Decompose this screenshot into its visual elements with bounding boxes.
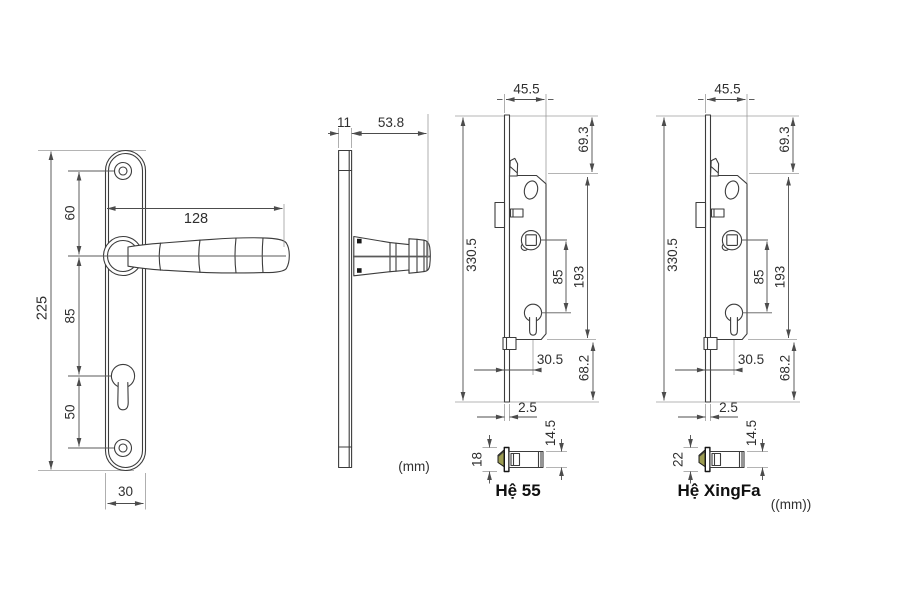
bottom-fixing-tab [704,338,717,350]
lock-diagram-1: 330.5 45.5 69.3 85 193 68.2 30.5 2.5 22 [656,82,800,501]
lock-faceplate [505,115,510,402]
mount-screw-dot [357,268,362,273]
case-slot [511,209,524,217]
dim-label-50: 50 [63,404,78,419]
front-view: 225 60 85 50 [35,151,290,510]
case-slot [712,209,725,217]
dim-label-case-width: 45.5 [513,82,539,97]
latch-body [509,452,543,468]
top-latch-tab [510,158,518,176]
dim-label-case-to-bottom: 68.2 [577,355,592,381]
unit-note: (mm) [398,459,429,474]
dim-label-projection: 53.8 [378,115,404,130]
dim-label-top-to-case: 69.3 [576,126,591,152]
lock-diagram-0: 330.5 45.5 69.3 85 193 68.2 30.5 2.5 18 [455,82,599,501]
dim-label-top-to-case: 69.3 [777,126,792,152]
dim-label-faceplate-height: 330.5 [665,238,680,272]
technical-drawing-page: 225 60 85 50 [0,0,900,600]
dim-label-case-to-bottom: 68.2 [778,355,793,381]
dim-label-spindle-to-cylinder: 85 [551,269,566,284]
backplate-outline [106,151,146,471]
side-view: 11 53.8 (mm) [328,114,430,474]
lock-faceplate [706,115,711,402]
dim-label-case-height: 193 [773,266,788,289]
latch-detail: 22 14.5 [671,420,769,484]
dim-label-latch-body-height: 14.5 [744,420,759,446]
dim-label-spindle-to-cylinder: 85 [752,269,767,284]
spindle-follower [521,231,540,251]
dim-label-backset: 30.5 [537,352,563,367]
top-latch-tab [711,158,719,176]
dim-label-backset: 30.5 [738,352,764,367]
dim-label-case-width: 45.5 [714,82,740,97]
latch-body [710,452,744,468]
mount-screw-dot [357,239,362,244]
dim-label-60: 60 [63,205,78,220]
dim-label-plate-width: 30 [118,484,133,499]
latch-bolt [696,203,706,228]
dim-label-latch-plate-height: 22 [671,452,686,467]
dim-label-faceplate-height: 330.5 [464,238,479,272]
spindle-follower [722,231,741,251]
latch-detail: 18 14.5 [470,420,568,484]
lock-system-label: Hệ 55 [495,481,540,500]
latch-front-plate [705,448,710,472]
dim-label-85: 85 [63,308,78,323]
dim-label-plate-thickness: 11 [337,115,351,130]
bottom-screw [115,440,132,457]
top-screw [115,163,132,180]
dim-label-latch-plate-height: 18 [470,452,485,467]
handle-lever [128,238,289,273]
technical-drawing: 225 60 85 50 [0,0,900,600]
latch-front-plate [504,448,509,472]
handle-side-profile [353,237,430,276]
unit-note-right: ((mm)) [771,497,811,512]
latch-bolt [495,203,505,228]
dim-label-handle-length: 128 [184,211,208,227]
lock-system-label: Hệ XingFa [677,481,761,500]
dim-label-case-height: 193 [572,266,587,289]
dim-label-faceplate-thickness: 2.5 [719,400,738,415]
dim-label-faceplate-thickness: 2.5 [518,400,537,415]
dim-label-latch-body-height: 14.5 [543,420,558,446]
dim-label-plate-height: 225 [35,296,51,320]
bottom-fixing-tab [503,338,516,350]
